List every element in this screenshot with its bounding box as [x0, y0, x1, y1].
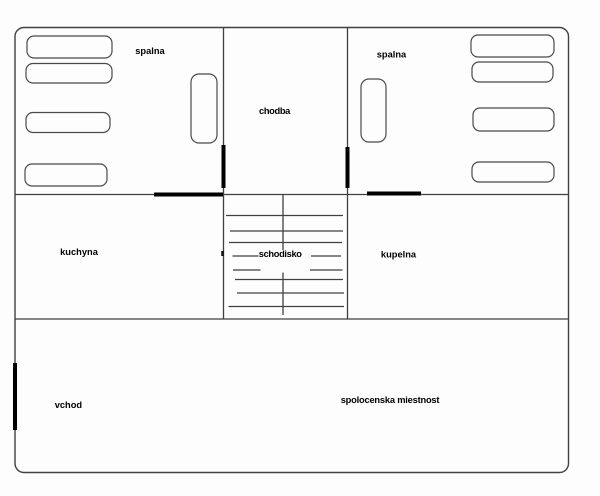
svg-text:kuchyna: kuchyna — [60, 247, 99, 257]
svg-text:vchod: vchod — [55, 400, 83, 410]
svg-text:spalna: spalna — [377, 50, 407, 60]
svg-text:spolocenska miestnost: spolocenska miestnost — [341, 395, 440, 405]
svg-text:chodba: chodba — [259, 106, 291, 116]
svg-text:kupelna: kupelna — [381, 250, 417, 260]
svg-text:schodisko: schodisko — [259, 249, 303, 259]
svg-text:spalna: spalna — [135, 46, 165, 56]
